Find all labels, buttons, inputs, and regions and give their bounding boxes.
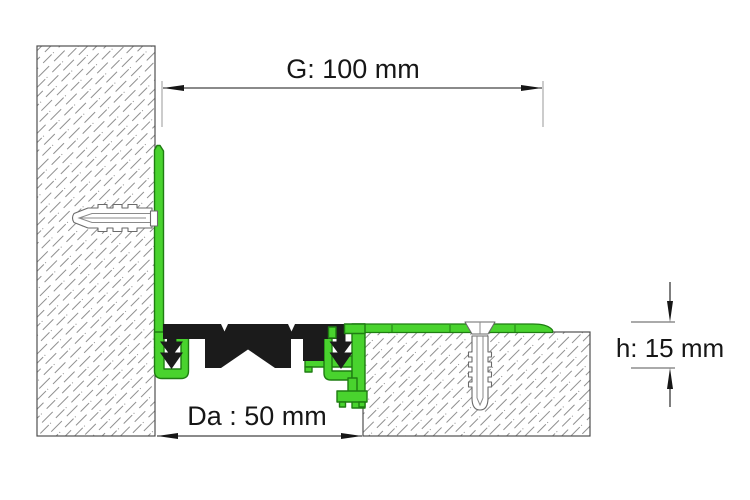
profile-wall-leg [155,146,164,341]
joint-arrow-right [341,433,362,439]
dimension-gap-width: G: 100 mm [162,54,543,127]
insert-right-connector [303,339,324,361]
technical-drawing: G: 100 mm Da : 50 mm h: 15 mm [0,0,750,500]
height-arrow-down [667,301,673,322]
wall-plug-screw-head [151,211,158,226]
height-dimension-label: h: 15 mm [616,333,724,363]
floor-plug-body [469,336,492,410]
profile-right-channel-lip [329,327,337,338]
gap-dimension-label: G: 100 mm [286,54,420,84]
dimension-profile-height: h: 15 mm [616,282,724,407]
profile-base-arm-nub [305,367,312,372]
joint-dimension-label: Da : 50 mm [187,401,327,431]
insert-center-web [218,339,291,368]
profile-foot-nub-right [359,402,365,407]
profile-right-channel-cap [345,324,366,334]
wall-section [37,46,155,436]
insert-top-bar [163,324,345,339]
gap-arrow-left [163,85,184,91]
dimension-joint-width: Da : 50 mm [157,401,362,439]
profile-foot-stem [348,378,357,392]
profile-foot-nub-left [340,402,346,407]
profile-foot-bar [337,391,367,402]
joint-arrow-left [157,433,178,439]
insert-left-leg [205,339,218,368]
gap-arrow-right [521,85,542,91]
technical-drawing-page: G: 100 mm Da : 50 mm h: 15 mm [0,0,750,500]
height-arrow-up [667,368,673,389]
